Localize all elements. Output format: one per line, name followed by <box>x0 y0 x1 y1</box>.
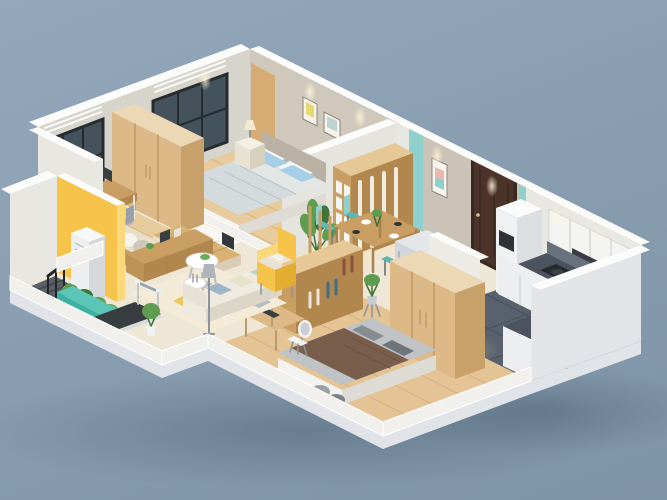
lamp-shade <box>202 264 216 278</box>
deco-bowl-green <box>200 254 210 260</box>
porch-west-wall <box>1 171 57 290</box>
floor-plan-render <box>0 0 667 500</box>
render-canvas <box>0 0 667 500</box>
